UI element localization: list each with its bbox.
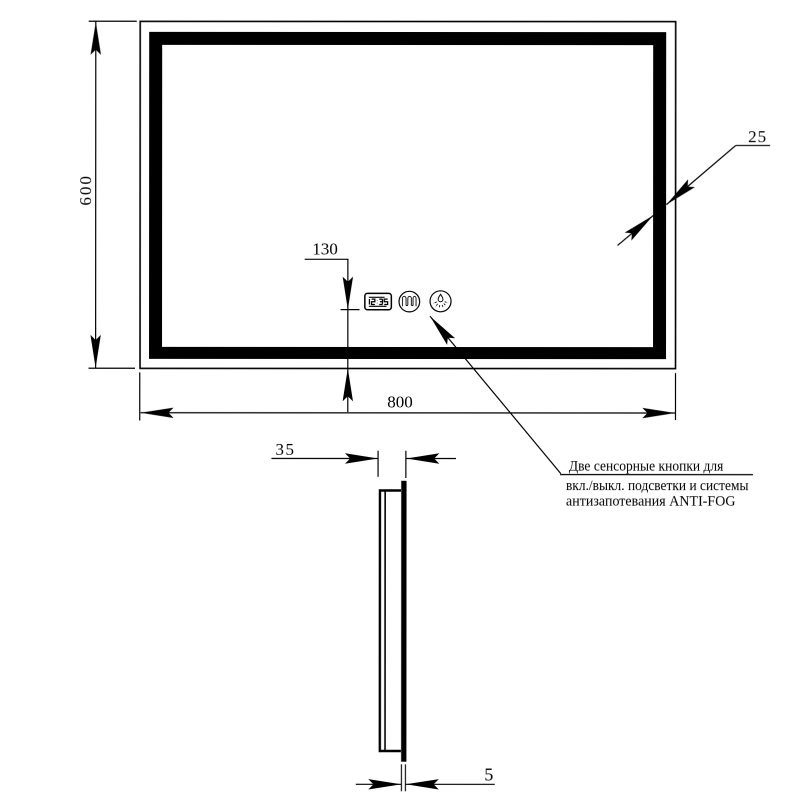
svg-text:антизапотевания ANTI-FOG: антизапотевания ANTI-FOG bbox=[566, 493, 736, 509]
svg-text:35: 35 bbox=[275, 440, 294, 459]
svg-text:130: 130 bbox=[312, 239, 338, 258]
svg-text:800: 800 bbox=[387, 392, 413, 411]
svg-text:Две сенсорные кнопки для: Две сенсорные кнопки для bbox=[569, 458, 724, 474]
svg-text:600: 600 bbox=[76, 176, 95, 206]
svg-text:5: 5 bbox=[484, 765, 493, 785]
svg-text:вкл./выкл. подсветки и системы: вкл./выкл. подсветки и системы bbox=[566, 478, 749, 494]
svg-text:25: 25 bbox=[748, 127, 766, 146]
